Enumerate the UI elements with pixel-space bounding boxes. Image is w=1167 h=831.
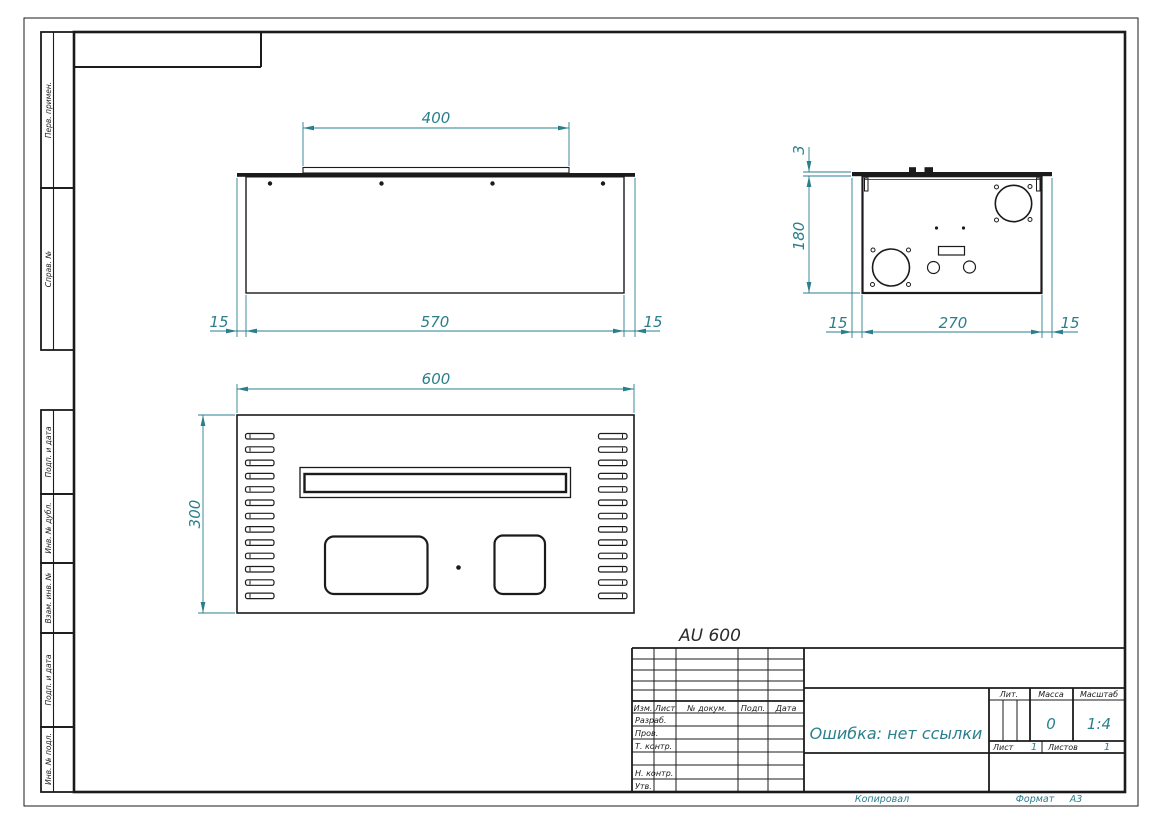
dim-body-width: 570 <box>421 313 450 331</box>
vent-slots-right <box>599 434 628 599</box>
dim-front-width: 600 <box>422 370 451 388</box>
mount-hole <box>1028 185 1032 189</box>
row-prov: Пров. <box>635 729 658 738</box>
col-list: Лист <box>654 704 676 713</box>
dimension-geometry <box>198 122 1078 613</box>
dim-flange-right: 15 <box>643 313 662 331</box>
dimension-arrow <box>862 330 873 335</box>
stamp-label: Справ. № <box>44 251 53 288</box>
front-panel-button <box>495 536 546 595</box>
stamp-label: Перв. примен. <box>44 82 53 138</box>
kopiroval-label: Копировал <box>855 794 909 805</box>
connector-cutout <box>995 185 1031 221</box>
top-view <box>237 168 635 294</box>
listov-label: Листов <box>1047 743 1078 752</box>
dimension-arrow <box>623 387 634 392</box>
row-nkontr: Н. контр. <box>635 769 673 778</box>
dim-front-height: 300 <box>186 500 204 529</box>
mount-hole <box>871 248 875 252</box>
side-view-body <box>863 176 1042 293</box>
dimension-arrow <box>201 415 206 426</box>
masshtab-value: 1:4 <box>1087 715 1111 733</box>
side-view-bracket <box>1037 178 1041 191</box>
stamp-label: Инв. № дубл. <box>44 502 53 553</box>
screw-hole <box>268 181 272 185</box>
dimension-arrow <box>807 161 812 172</box>
col-podp: Подп. <box>741 704 765 713</box>
mount-hole <box>907 248 911 252</box>
drawing-sheet: Перв. примен. Справ. № Подп. и дата Инв.… <box>0 0 1167 831</box>
dimension-arrow <box>303 126 314 131</box>
mount-hole <box>1028 218 1032 222</box>
list-value: 1 <box>1031 742 1037 753</box>
list-label: Лист <box>992 743 1014 752</box>
dim-flange-left: 15 <box>209 313 228 331</box>
front-panel-window <box>325 537 428 595</box>
top-view-lid <box>303 168 569 174</box>
small-connector-hole <box>928 262 940 274</box>
lit-label: Лит. <box>999 690 1018 699</box>
stamp-label: Инв. № подл. <box>44 733 53 785</box>
drawing-frame <box>74 32 1125 792</box>
dim-body-depth: 270 <box>939 314 968 332</box>
listov-value: 1 <box>1104 742 1110 753</box>
side-view-bracket <box>865 178 869 191</box>
stamp-label: Взам. инв. № <box>44 572 53 623</box>
dimension-arrow <box>558 126 569 131</box>
col-doc: № докум. <box>686 704 726 713</box>
dim-side-flange-right: 15 <box>1060 314 1079 332</box>
mount-hole <box>995 185 999 189</box>
mount-hole <box>995 218 999 222</box>
dimension-labels: 400 15 570 15 600 300 3 180 15 270 15 <box>186 109 1080 528</box>
col-data: Дата <box>775 704 797 713</box>
massa-label: Масса <box>1038 690 1064 699</box>
drawing-canvas: Перв. примен. Справ. № Подп. и дата Инв.… <box>0 0 1167 831</box>
pin-hole <box>935 226 938 229</box>
display-slot-inner <box>305 474 567 492</box>
top-view-body <box>246 177 624 293</box>
vent-slots-left <box>246 434 275 599</box>
stamp-label: Подп. и дата <box>44 426 53 477</box>
dimension-arrow <box>201 602 206 613</box>
dimension-arrow <box>807 282 812 293</box>
dimension-arrow <box>613 329 624 334</box>
dim-lid-width: 400 <box>422 109 451 127</box>
mount-hole <box>871 283 875 287</box>
front-view-panel <box>237 415 634 613</box>
dimension-arrow <box>237 387 248 392</box>
format-label: Формат <box>1016 794 1055 805</box>
sheet-footer: Копировал Формат А3 <box>855 794 1082 805</box>
format-value: А3 <box>1069 794 1083 805</box>
small-connector-hole <box>964 261 976 273</box>
col-izm: Изм. <box>634 704 653 713</box>
side-view-tab <box>909 167 916 172</box>
document-title: Ошибка: нет ссылки <box>810 724 983 743</box>
mount-hole <box>907 283 911 287</box>
dim-lid-thickness: 3 <box>790 145 808 155</box>
pin-hole <box>962 226 965 229</box>
connector-cutout <box>873 249 910 286</box>
dimension-arrow <box>807 176 812 187</box>
row-razrab: Разраб. <box>635 716 666 725</box>
model-label: AU 600 <box>678 626 741 646</box>
dim-side-flange-left: 15 <box>828 314 847 332</box>
dimension-arrow <box>246 329 257 334</box>
stamp-label: Подп. и дата <box>44 654 53 705</box>
row-tkontr: Т. контр. <box>635 742 672 751</box>
side-view <box>852 167 1052 293</box>
side-view-slot <box>939 247 965 256</box>
massa-value: 0 <box>1046 715 1056 733</box>
led-hole <box>456 565 461 570</box>
screw-hole <box>601 181 605 185</box>
front-view <box>237 415 634 613</box>
side-view-tab <box>925 167 934 172</box>
title-block: AU 600 Изм. Лист № докум. Подп. Дата Раз… <box>634 626 1118 791</box>
screw-hole <box>379 181 383 185</box>
screw-hole <box>490 181 494 185</box>
dim-side-height: 180 <box>790 222 808 251</box>
row-utv: Утв. <box>635 782 652 791</box>
masshtab-label: Масштаб <box>1080 690 1118 699</box>
dimension-arrow <box>1031 330 1042 335</box>
